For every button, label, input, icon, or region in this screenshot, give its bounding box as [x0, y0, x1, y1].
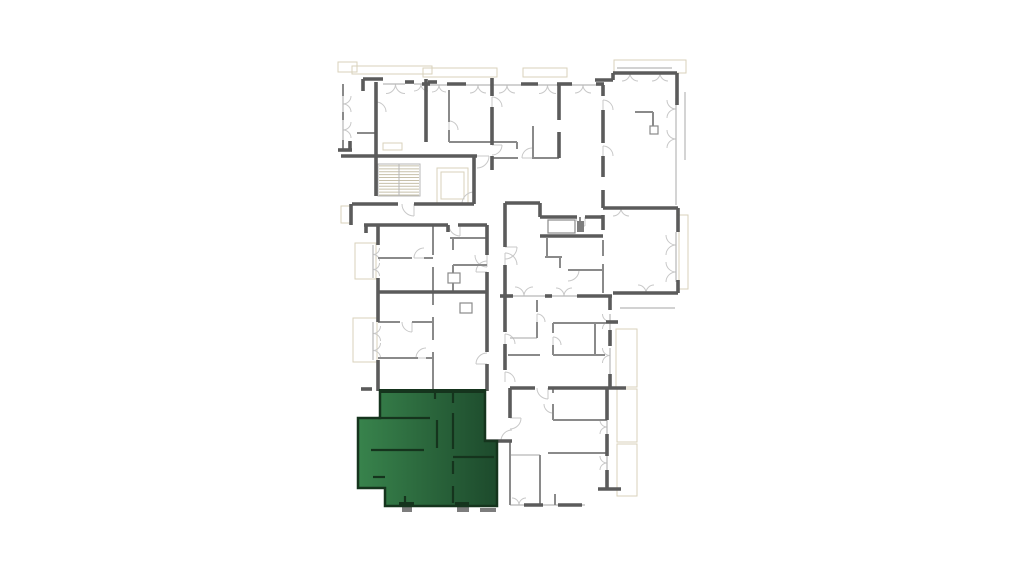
- selected-unit-polygon[interactable]: [358, 391, 497, 506]
- shafts-layer: [448, 126, 658, 313]
- floorplan-svg: [0, 0, 1024, 576]
- floorplan-page: [0, 0, 1024, 576]
- stairs: [378, 164, 420, 196]
- highlighted-unit: [358, 391, 497, 507]
